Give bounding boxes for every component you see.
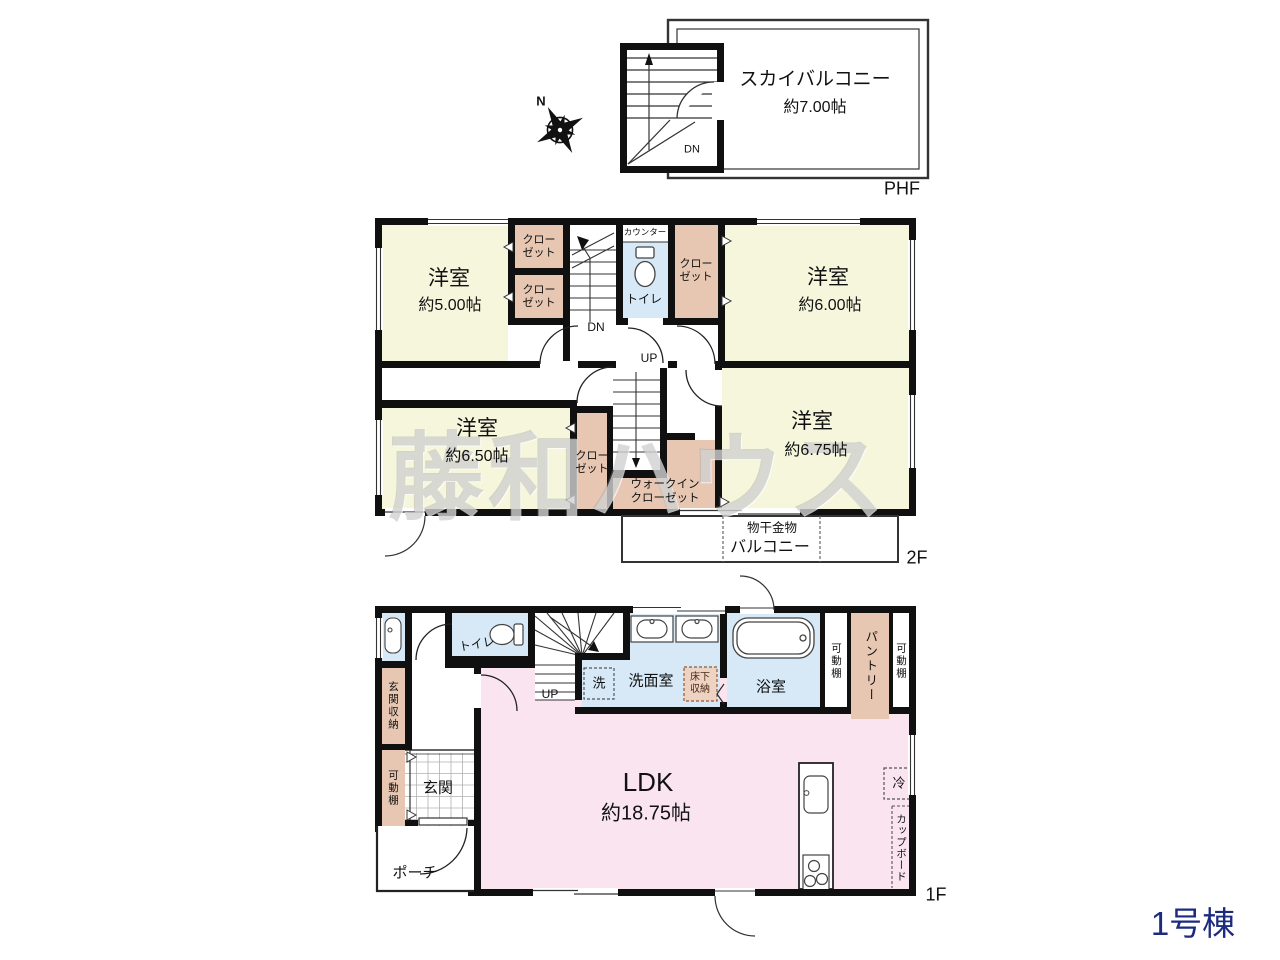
f1-toilet-fixture — [490, 624, 523, 645]
f1-pantry-label: パントリー — [863, 630, 877, 703]
f2-room-nw-size: 約5.00帖 — [418, 297, 481, 315]
f2-closet-c-label: クローゼット — [678, 258, 714, 284]
floorplan-page: { "building": "1号棟", "watermark": "藤和ハウス… — [0, 0, 1280, 960]
phf-plan — [624, 20, 929, 178]
f1-bathtub — [733, 618, 814, 658]
f1-floor-label: 1F — [925, 885, 946, 906]
f2-toilet-fixture — [635, 247, 655, 287]
phf-dn-label: DN — [684, 144, 700, 157]
f2-room-se-label: 洋室 — [791, 410, 833, 434]
f2-room-nw-fill — [382, 225, 508, 361]
f1-entrance-label: 玄関 — [423, 779, 453, 796]
f1-hand-sink — [385, 618, 401, 653]
f2-room-sw-label: 洋室 — [456, 417, 498, 441]
f1-entrance-storage-label: 玄関収納 — [387, 681, 399, 731]
f1-ldk-label: LDK — [623, 768, 674, 798]
f2-dn-label: DN — [587, 321, 604, 335]
f1-porch-label: ポーチ — [392, 864, 437, 881]
f2-closet-b-label: クローゼット — [521, 284, 557, 310]
f2-counter-label: カウンター — [624, 228, 667, 238]
f1-washer-label: 洗 — [592, 677, 605, 692]
f2-closet-sw-label: クローゼット — [574, 450, 610, 476]
f1-shelf-label-entrance: 可動棚 — [387, 769, 399, 807]
f2-balcony-label: バルコニー — [730, 539, 810, 557]
f2-monohoshi-label: 物干金物 — [747, 521, 797, 535]
f1-kitchen-counter — [799, 763, 833, 890]
phf-floor-label: PHF — [884, 179, 920, 200]
f1-cupboard-label: カップボード — [895, 814, 907, 883]
f2-toilet-label: トイレ — [626, 293, 662, 307]
phf-door-opening — [712, 82, 724, 120]
f2-walkin-closet-label: ウォークインクローゼット — [629, 478, 701, 505]
f2-closet-a-label: クローゼット — [521, 234, 557, 260]
f1-underfloor-label: 床下収納 — [689, 672, 711, 696]
phf-stairwell — [624, 47, 721, 170]
f2-floor-label: 2F — [906, 548, 927, 569]
f1-washroom-label: 洗面室 — [628, 672, 673, 689]
phf-skybalcony-size: 約7.00帖 — [783, 99, 846, 117]
f1-shelf-label-left: 可動棚 — [830, 642, 842, 680]
f2-room-ne-size: 約6.00帖 — [798, 297, 861, 315]
compass-north-label: N — [536, 95, 545, 110]
f2-up-label: UP — [641, 352, 658, 366]
f1-ldk-size: 約18.75帖 — [601, 803, 691, 826]
f1-up-label: UP — [542, 688, 559, 702]
f1-plan — [374, 576, 917, 936]
f1-shelf-label-right: 可動棚 — [895, 642, 907, 680]
f2-room-se-size: 約6.75帖 — [784, 442, 847, 460]
f2-room-nw-label: 洋室 — [428, 267, 470, 291]
f1-fridge-label: 冷 — [892, 777, 905, 792]
f2-room-sw-size: 約6.50帖 — [445, 448, 508, 466]
f2-room-ne-label: 洋室 — [807, 266, 849, 290]
phf-skybalcony-label: スカイバルコニー — [739, 69, 890, 91]
f2-room-ne-fill — [725, 225, 909, 361]
building-number-label: 1号棟 — [1151, 897, 1235, 945]
f1-bath-label: 浴室 — [756, 678, 786, 695]
